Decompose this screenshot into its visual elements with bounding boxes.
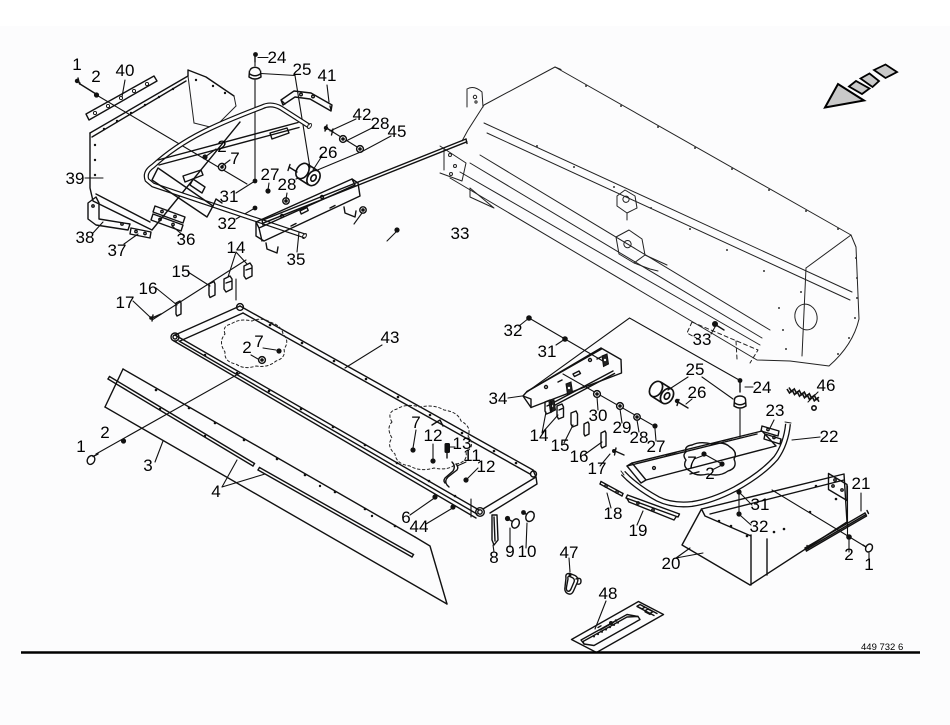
svg-text:7: 7: [687, 453, 696, 472]
svg-text:25: 25: [293, 60, 312, 79]
svg-text:33: 33: [451, 224, 470, 243]
svg-text:26: 26: [319, 143, 338, 162]
svg-text:2: 2: [100, 423, 109, 442]
svg-text:14: 14: [227, 238, 246, 257]
svg-text:22: 22: [820, 427, 839, 446]
svg-text:28: 28: [278, 175, 297, 194]
svg-text:18: 18: [604, 504, 623, 523]
svg-text:38: 38: [76, 228, 95, 247]
svg-text:449 732 6: 449 732 6: [861, 642, 903, 653]
svg-text:15: 15: [172, 262, 191, 281]
svg-text:32: 32: [504, 321, 523, 340]
svg-text:9: 9: [505, 542, 514, 561]
svg-text:39: 39: [66, 169, 85, 188]
svg-text:44: 44: [410, 517, 429, 536]
svg-text:25: 25: [686, 360, 705, 379]
svg-text:7: 7: [254, 332, 263, 351]
svg-text:34: 34: [489, 389, 508, 408]
svg-text:17: 17: [588, 459, 607, 478]
svg-text:1: 1: [72, 55, 81, 74]
svg-text:8: 8: [489, 548, 498, 567]
svg-text:33: 33: [693, 330, 712, 349]
svg-text:2: 2: [705, 464, 714, 483]
svg-text:24: 24: [753, 378, 772, 397]
svg-text:30: 30: [589, 406, 608, 425]
svg-text:10: 10: [518, 542, 537, 561]
svg-text:14: 14: [530, 426, 549, 445]
svg-text:7: 7: [411, 413, 420, 432]
svg-text:27: 27: [647, 437, 666, 456]
svg-text:42: 42: [353, 105, 372, 124]
svg-text:1: 1: [76, 437, 85, 456]
svg-text:31: 31: [751, 495, 770, 514]
svg-text:37: 37: [108, 241, 127, 260]
svg-text:43: 43: [381, 328, 400, 347]
svg-text:32: 32: [750, 517, 769, 536]
svg-text:16: 16: [570, 447, 589, 466]
svg-text:12: 12: [477, 457, 496, 476]
svg-text:46: 46: [817, 376, 836, 395]
svg-text:35: 35: [287, 250, 306, 269]
svg-text:40: 40: [116, 61, 135, 80]
svg-text:31: 31: [538, 342, 557, 361]
svg-text:36: 36: [177, 230, 196, 249]
svg-text:45: 45: [388, 122, 407, 141]
svg-text:7: 7: [230, 149, 239, 168]
svg-text:31: 31: [220, 187, 239, 206]
svg-text:2: 2: [217, 137, 226, 156]
svg-text:41: 41: [318, 66, 337, 85]
svg-text:1: 1: [864, 555, 873, 574]
svg-text:2: 2: [91, 67, 100, 86]
svg-text:20: 20: [662, 554, 681, 573]
svg-text:12: 12: [424, 426, 443, 445]
svg-text:21: 21: [852, 474, 871, 493]
svg-text:15: 15: [551, 436, 570, 455]
svg-text:48: 48: [599, 584, 618, 603]
svg-text:26: 26: [688, 383, 707, 402]
svg-text:19: 19: [629, 521, 648, 540]
svg-text:32: 32: [218, 214, 237, 233]
svg-text:2: 2: [242, 338, 251, 357]
svg-text:24: 24: [268, 48, 287, 67]
svg-text:47: 47: [560, 543, 579, 562]
svg-text:4: 4: [211, 482, 220, 501]
svg-text:23: 23: [766, 401, 785, 420]
svg-text:16: 16: [139, 279, 158, 298]
svg-text:17: 17: [116, 293, 135, 312]
svg-text:2: 2: [844, 545, 853, 564]
svg-text:3: 3: [143, 456, 152, 475]
